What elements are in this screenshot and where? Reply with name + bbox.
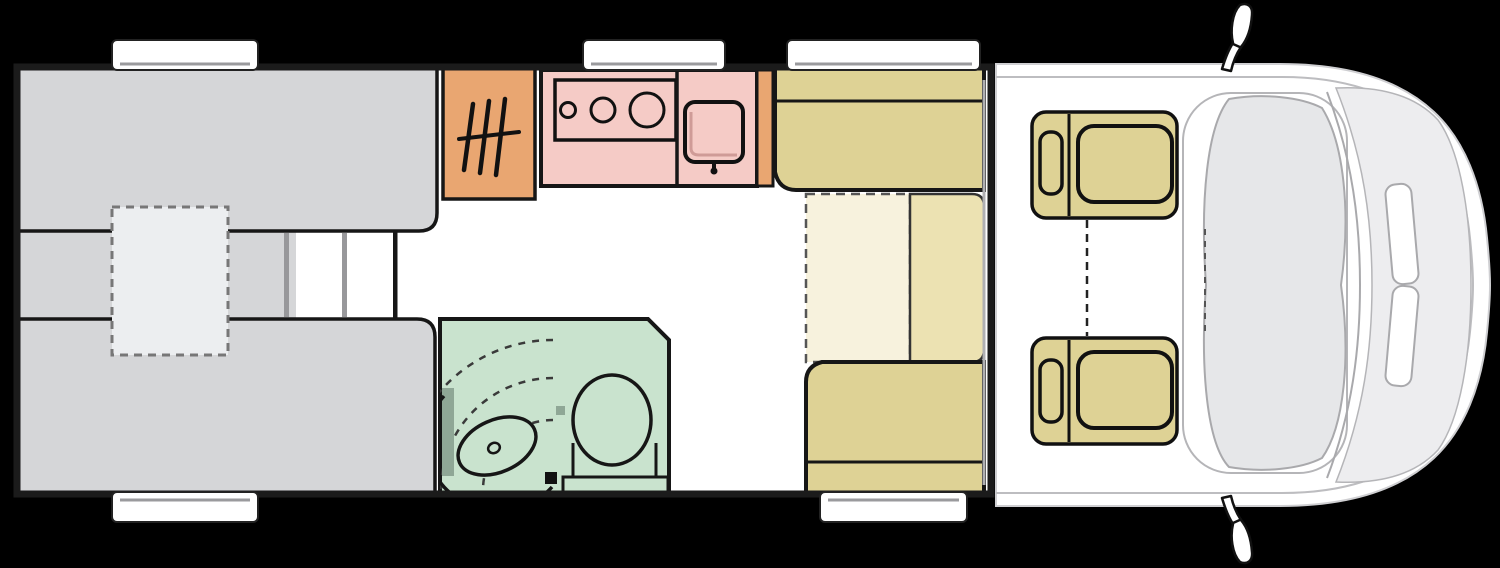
table <box>910 194 984 362</box>
cab-seat-passenger <box>1032 338 1177 444</box>
dinette-bench-front <box>775 68 984 190</box>
step-line-2 <box>342 233 347 317</box>
seat-cushion <box>1078 126 1172 202</box>
washbasin <box>573 375 651 465</box>
floorplan-svg <box>0 0 1500 568</box>
step-line-1 <box>284 233 289 317</box>
burner-large <box>630 93 664 127</box>
table-extension <box>806 194 910 362</box>
window-dinette-bottom <box>820 492 967 522</box>
sink-drain <box>711 168 718 175</box>
cab-seat-driver <box>1032 112 1177 218</box>
step-line-3 <box>393 232 398 318</box>
bathroom <box>403 319 669 511</box>
shower-hinge-dot <box>556 406 565 415</box>
dashboard-top <box>1204 96 1346 470</box>
night-console <box>112 207 228 355</box>
seat-cushion <box>1078 352 1172 428</box>
seat-armrest <box>1040 132 1062 194</box>
kitchen-unit <box>541 70 773 186</box>
seat-armrest <box>1040 360 1062 422</box>
burner-medium <box>591 98 615 122</box>
window-bed-bottom <box>112 492 258 522</box>
wardrobe <box>443 68 535 199</box>
door-latch <box>545 472 557 484</box>
burner-small <box>561 103 576 118</box>
wardrobe-side-panel <box>757 70 773 186</box>
dinette-bench-rear <box>806 362 984 494</box>
floorplan-canvas <box>0 0 1500 568</box>
dinette <box>775 68 984 494</box>
toilet-cistern <box>442 388 454 476</box>
